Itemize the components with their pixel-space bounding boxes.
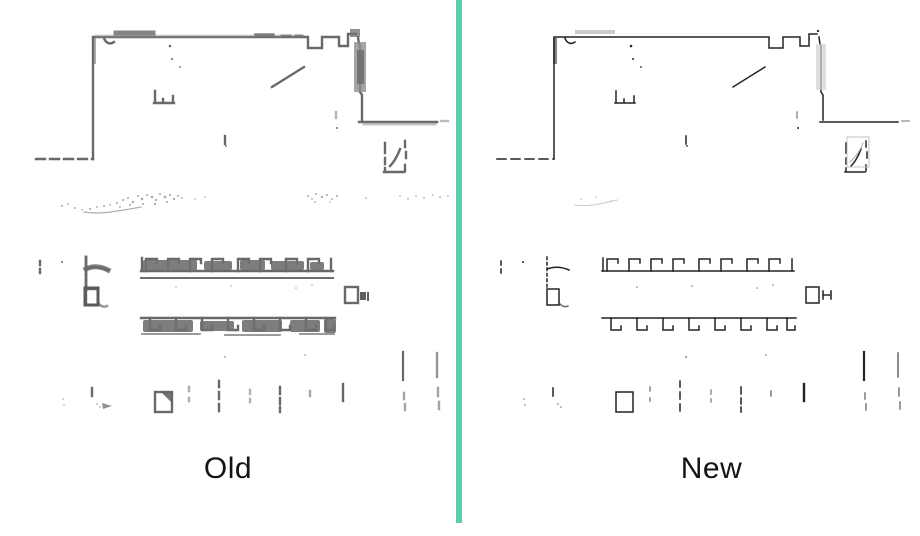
map-label-new: New xyxy=(482,451,920,487)
map-comparison-figure: Old New xyxy=(0,0,920,536)
occupancy-map-old-image xyxy=(0,0,460,430)
map-panel-old: Old xyxy=(0,0,456,536)
occupancy-map-new-image xyxy=(461,0,920,430)
map-label-old: Old xyxy=(0,451,456,487)
map-panel-new: New xyxy=(461,0,920,536)
